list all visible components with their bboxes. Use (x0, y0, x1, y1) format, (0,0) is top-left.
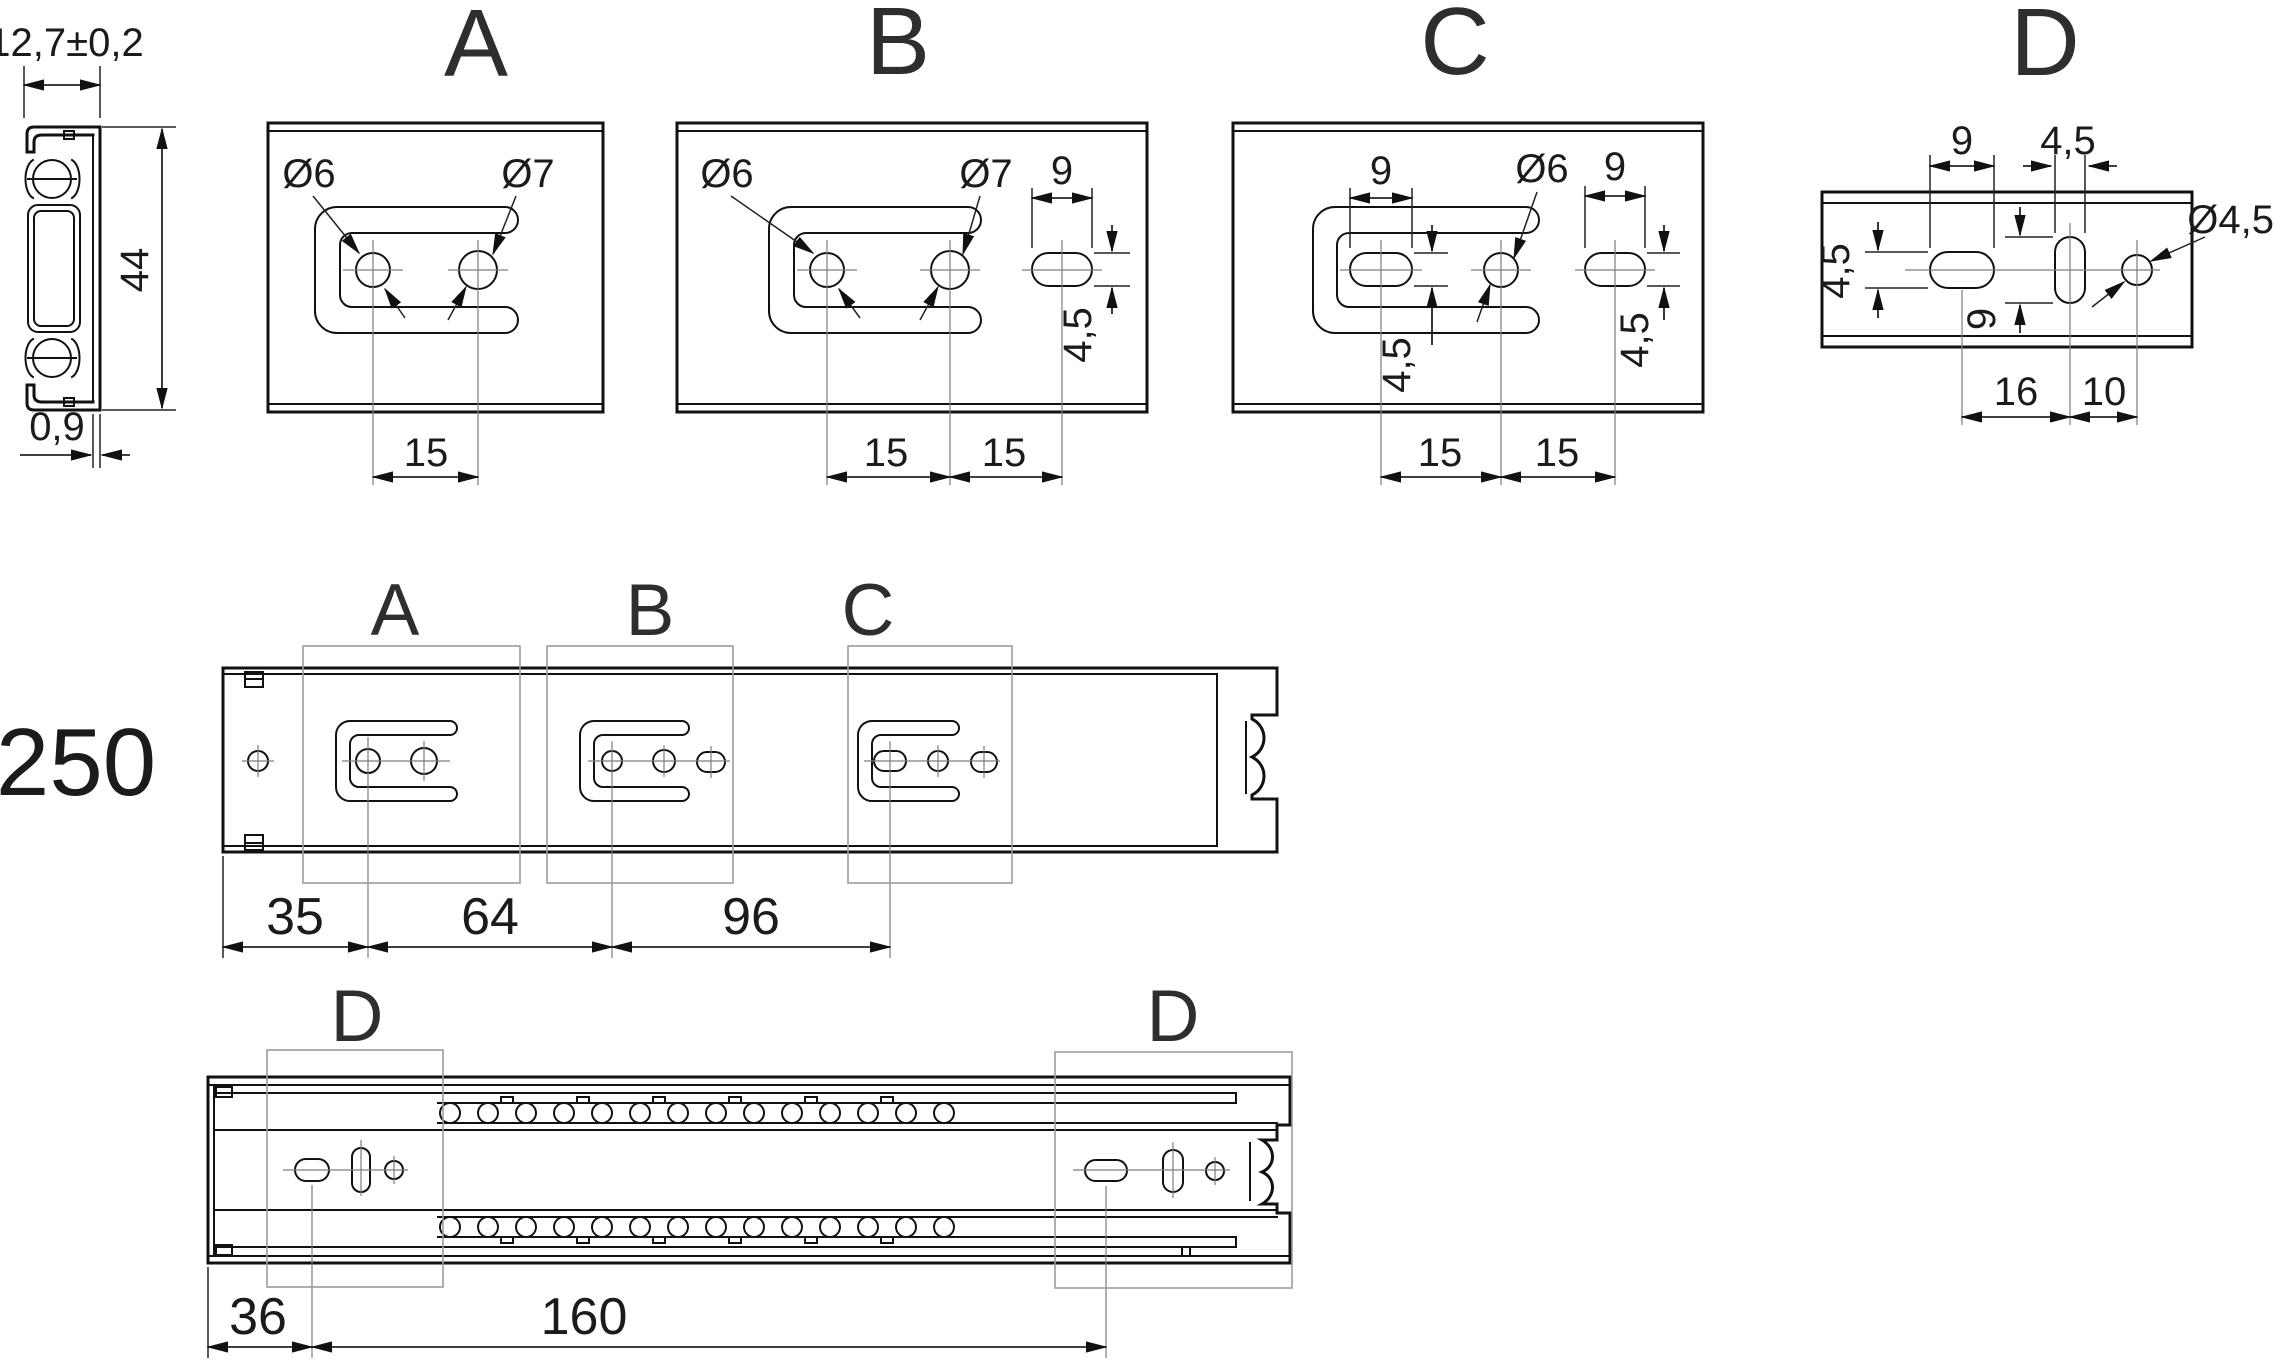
dim-outer-d-to-d: 160 (541, 1288, 628, 1346)
dim-c-pitch-right: 15 (1535, 431, 1580, 475)
dim-rail-a-to-b: 64 (461, 888, 519, 946)
dim-a-hole-left: Ø6 (282, 152, 335, 196)
dim-rail-b-to-c: 96 (722, 888, 780, 946)
drawing-canvas: 12,7±0,2 44 0,9 A (0, 0, 2275, 1368)
detail-c-label: C (1420, 0, 1489, 95)
dim-c-slot-right-height: 4,5 (1613, 312, 1657, 368)
dim-cross-height: 44 (113, 248, 157, 293)
dim-c-slot-right-width: 9 (1604, 145, 1626, 189)
dim-a-pitch: 15 (404, 431, 449, 475)
dim-b-slot-width: 9 (1051, 149, 1073, 193)
detail-a-label: A (444, 0, 508, 97)
page-background (0, 0, 2275, 1368)
zone-label-d-right: D (1147, 976, 1200, 1057)
dim-b-hole-right: Ø7 (959, 152, 1012, 196)
technical-drawing-page: 12,7±0,2 44 0,9 A (0, 0, 2275, 1368)
dim-c-pitch-left: 15 (1418, 431, 1463, 475)
detail-b-label: B (866, 0, 930, 95)
dim-d-mid-slot-width: 4,5 (2040, 119, 2096, 163)
dim-cross-thickness: 0,9 (29, 405, 85, 449)
dim-d-spacing-left: 16 (1994, 370, 2039, 414)
dim-d-spacing-right: 10 (2082, 370, 2127, 414)
dim-c-hole: Ø6 (1515, 147, 1568, 191)
zone-label-b: B (626, 570, 675, 651)
dim-b-pitch-left: 15 (864, 431, 909, 475)
dim-rail-end-to-a: 35 (266, 888, 324, 946)
dim-c-slot-left-width: 9 (1370, 149, 1392, 193)
dim-c-slot-left-height: 4,5 (1375, 337, 1419, 393)
rail-length-label: 250 (0, 709, 156, 816)
dim-a-hole-right: Ø7 (501, 152, 554, 196)
dim-cross-width: 12,7±0,2 (0, 21, 144, 65)
dim-d-hole: Ø4,5 (2187, 198, 2274, 242)
dim-d-slot-width: 9 (1951, 119, 1973, 163)
zone-label-c: C (842, 570, 895, 651)
zone-label-d-left: D (331, 976, 384, 1057)
dim-d-slot-height: 4,5 (1814, 243, 1858, 299)
dim-b-hole-left: Ø6 (700, 152, 753, 196)
detail-d-label: D (2010, 0, 2079, 96)
dim-b-pitch-right: 15 (982, 431, 1027, 475)
zone-label-a: A (371, 570, 420, 651)
dim-d-mid-slot-height: 9 (1960, 308, 2004, 330)
dim-b-slot-height: 4,5 (1056, 307, 1100, 363)
dim-outer-end-to-d: 36 (229, 1288, 287, 1346)
